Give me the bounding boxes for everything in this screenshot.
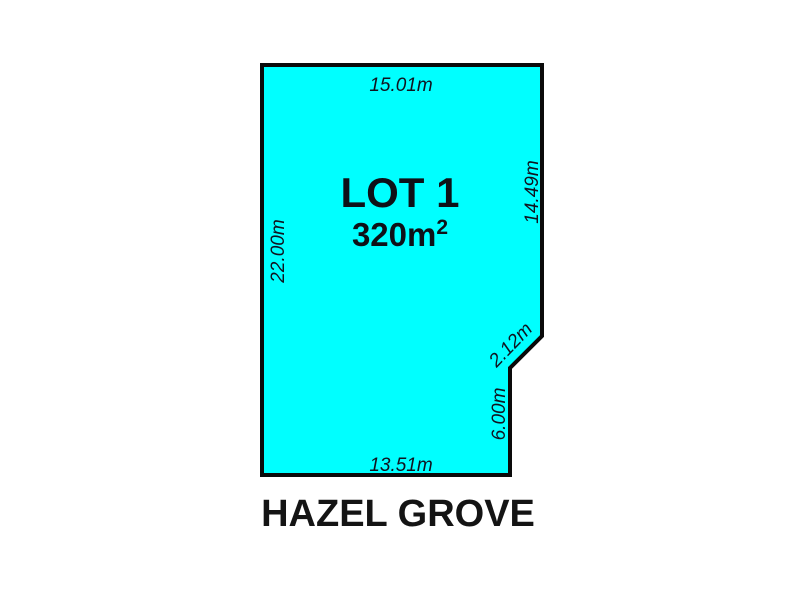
dimension-bottom: 13.51m	[369, 455, 432, 476]
dimension-right-upper: 14.49m	[522, 160, 543, 223]
dimension-right-lower: 6.00m	[489, 388, 510, 441]
dimension-top: 15.01m	[369, 75, 432, 96]
lot-area-exponent: 2	[436, 216, 448, 239]
dimension-left: 22.00m	[268, 219, 289, 283]
lot-plan-svg: 15.01m 22.00m 14.49m 2.12m 6.00m 13.51m …	[0, 0, 800, 600]
lot-area-value: 320m	[352, 216, 436, 253]
lot-plan-canvas: 15.01m 22.00m 14.49m 2.12m 6.00m 13.51m …	[0, 0, 800, 600]
lot-label: LOT 1	[340, 169, 459, 216]
lot-area: 320m2	[352, 216, 448, 253]
street-name: HAZEL GROVE	[261, 493, 535, 535]
